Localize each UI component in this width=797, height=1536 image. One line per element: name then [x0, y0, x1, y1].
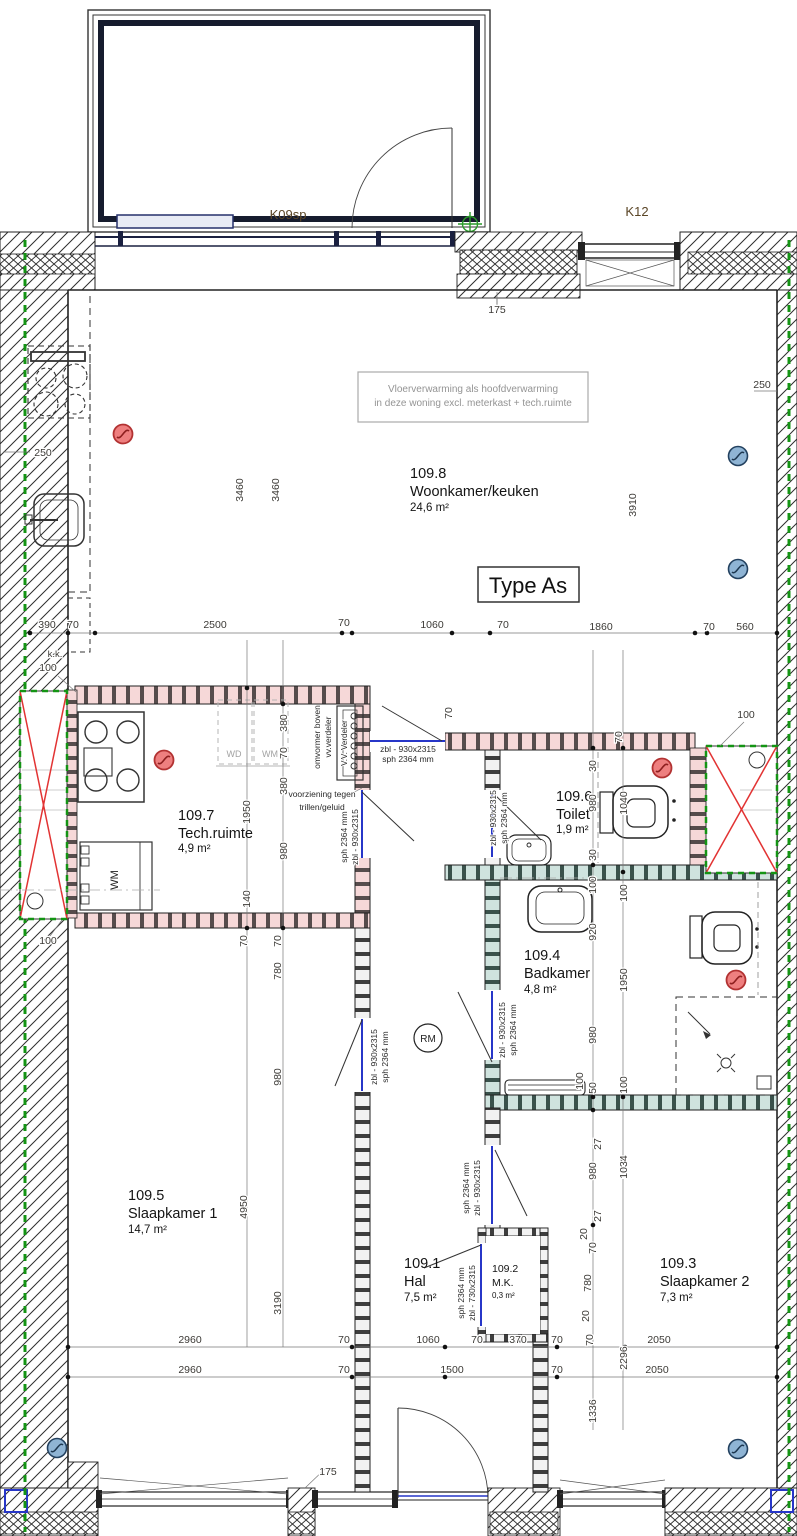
- type-label-box: Type As: [478, 567, 579, 602]
- dimension-label: 27: [592, 1210, 604, 1222]
- dimension-label: 250: [753, 379, 771, 391]
- interior-walls: [67, 686, 777, 1492]
- svg-text:4,8 m²: 4,8 m²: [524, 984, 557, 996]
- dimension-label: 3190: [272, 1291, 284, 1315]
- dimension-label: 30: [587, 760, 599, 772]
- smoke-detector-red-icon: [114, 425, 133, 444]
- toilet-wc: [600, 786, 676, 838]
- dimension-label: 2500: [203, 619, 227, 631]
- wd-label: WD: [227, 749, 242, 759]
- dimension-label: 980: [278, 842, 290, 860]
- front-door: [398, 1408, 488, 1500]
- dimension-label: 3910: [627, 493, 639, 517]
- dimension-label: 70: [613, 731, 625, 743]
- svg-text:Badkamer: Badkamer: [524, 966, 590, 982]
- svg-text:Toilet: Toilet: [556, 807, 590, 823]
- shafts: [20, 691, 777, 919]
- door-spec: zbl - 930x2315: [350, 809, 360, 865]
- svg-text:4,9 m²: 4,9 m²: [178, 843, 211, 855]
- dimension-label: 70: [703, 621, 715, 633]
- door-spec: sph 2364 mm: [339, 811, 349, 863]
- bedroom1-door: [335, 1018, 372, 1092]
- svg-text:109.1: 109.1: [404, 1256, 440, 1272]
- svg-text:109.4: 109.4: [524, 948, 560, 964]
- door-spec: zbl - 930x2315: [472, 1160, 482, 1216]
- svg-text:14,7 m²: 14,7 m²: [128, 1224, 167, 1236]
- dimension-label: 560: [736, 621, 754, 633]
- dimension-label: 2050: [647, 1334, 671, 1346]
- dimension-label: 380: [278, 714, 290, 732]
- right-shaft: [706, 746, 777, 873]
- dimension-label: 100: [39, 935, 57, 947]
- dimension-label: 780: [582, 1274, 594, 1292]
- bathroom-wc: [690, 912, 759, 964]
- dimension-label: 70: [272, 935, 284, 947]
- dimension-label: 100: [587, 876, 599, 894]
- dimension-label: 100: [737, 709, 755, 721]
- door-spec: sph 2364 mm: [499, 792, 509, 844]
- svg-text:Woonkamer/keuken: Woonkamer/keuken: [410, 484, 539, 500]
- dimension-label: 370: [509, 1334, 527, 1346]
- svg-text:109.7: 109.7: [178, 808, 214, 824]
- omvormer-note-1: omvormer boven: [312, 705, 322, 769]
- omvormer-note-2: vv.verdeler: [323, 716, 333, 757]
- bathroom-washbasin: [528, 886, 592, 932]
- detector-blue-icon: [48, 1439, 67, 1458]
- left-shaft-wall: [67, 690, 77, 918]
- dimension-label: 100: [574, 1072, 586, 1090]
- smoke-detector-red-icon: [727, 971, 746, 990]
- room-label-bathroom: 109.4 Badkamer 4,8 m²: [524, 948, 590, 996]
- symbols: RM: [48, 425, 748, 1459]
- svg-text:109.3: 109.3: [660, 1256, 696, 1272]
- right-shaft-wall: [690, 748, 706, 872]
- door-spec: sph 2364 mm: [380, 1031, 390, 1083]
- dimension-label: 140: [241, 890, 253, 908]
- tech-room-bottom-wall: [75, 913, 370, 928]
- dimension-label: 30: [587, 849, 599, 861]
- tech-room-top-wall: [75, 686, 370, 704]
- dimension-label: 20: [578, 1228, 590, 1240]
- window-k12: [578, 242, 681, 286]
- right-exterior-wall: [777, 232, 797, 1536]
- window-hall-sidelite: [312, 1490, 398, 1508]
- window-bedroom1: [96, 1478, 292, 1508]
- svg-text:0,3 m²: 0,3 m²: [492, 1291, 515, 1300]
- kk-label: k.k.: [48, 649, 63, 660]
- dimension-label: 3460: [270, 478, 282, 502]
- svg-text:Tech.ruimte: Tech.ruimte: [178, 826, 253, 842]
- room-label-livingroom: 109.8 Woonkamer/keuken 24,6 m²: [410, 466, 539, 514]
- dimension-label: 390: [38, 619, 56, 631]
- heatpump-unit: [78, 712, 144, 802]
- heating-note-box: Vloerverwarming als hoofdverwarming in d…: [358, 372, 588, 422]
- dimension-label: 70: [238, 935, 250, 947]
- window-code: K12: [625, 204, 648, 219]
- svg-text:RM: RM: [420, 1034, 436, 1045]
- vv-verdeler-label: V.V. Verdeler: [340, 720, 349, 766]
- svg-text:Slaapkamer 2: Slaapkamer 2: [660, 1274, 749, 1290]
- bathroom-west-wall: [485, 880, 500, 1095]
- bottom-exterior-wall: [0, 1408, 797, 1536]
- dimension-label: 20: [580, 1310, 592, 1322]
- smoke-detector-red-icon: [155, 751, 174, 770]
- door-spec: sph 2364 mm: [508, 1004, 518, 1056]
- door-spec: zbl - 730x2315: [467, 1265, 477, 1321]
- dimension-label: 70: [338, 1334, 350, 1346]
- note-line-2: in deze woning excl. meterkast + tech.ru…: [374, 398, 572, 409]
- room-label-bedroom1: 109.5 Slaapkamer 1 14,7 m²: [128, 1188, 217, 1236]
- washing-machine-label: WM: [109, 870, 121, 890]
- dimension-label: 1336: [587, 1399, 599, 1423]
- dimension-label: 70: [338, 1364, 350, 1376]
- svg-text:24,6 m²: 24,6 m²: [410, 502, 449, 514]
- dimension-label: 100: [618, 884, 630, 902]
- rm-smoke-detector-symbol: RM: [414, 1024, 442, 1052]
- dimension-label: 70: [497, 619, 509, 631]
- towel-radiator: [505, 1080, 585, 1095]
- note-line-1: Vloerverwarming als hoofdverwarming: [388, 384, 558, 395]
- dimension-label: 70: [278, 747, 290, 759]
- svg-text:109.8: 109.8: [410, 466, 446, 482]
- room-labels: 109.8 Woonkamer/keuken 24,6 m² 109.7 Tec…: [128, 466, 749, 1304]
- balcony-door-code: K09sp: [270, 207, 307, 222]
- svg-text:M.K.: M.K.: [492, 1277, 514, 1289]
- balcony-floor: [101, 23, 477, 219]
- dimension-label: 70: [584, 1334, 596, 1346]
- dimension-label: 1500: [440, 1364, 464, 1376]
- door-spec: zbl - 930x2315: [369, 1029, 379, 1085]
- door-spec: zbl - 930x2315: [497, 1002, 507, 1058]
- dimension-label: 100: [618, 1076, 630, 1094]
- dimension-label: 70: [471, 1334, 483, 1346]
- dimension-label: 1950: [618, 968, 630, 992]
- balcony: [88, 10, 490, 236]
- dimension-label: 70: [338, 617, 350, 629]
- dimension-label: 50: [587, 1082, 599, 1094]
- door-spec: zbl - 930x2315: [380, 744, 436, 754]
- dimension-label: 1060: [420, 619, 444, 631]
- svg-text:7,3 m²: 7,3 m²: [660, 1292, 693, 1304]
- dimension-label: 2960: [178, 1364, 202, 1376]
- shower: [676, 997, 777, 1095]
- balcony-planter: [117, 215, 233, 228]
- dimension-label: 2960: [178, 1334, 202, 1346]
- dimension-label: 780: [272, 962, 284, 980]
- hall-east-lower-wall: [533, 1342, 548, 1492]
- detector-blue-icon: [729, 447, 748, 466]
- wm-label: WM: [262, 749, 278, 759]
- dimension-label: 380: [278, 777, 290, 795]
- dimension-label: 920: [587, 923, 599, 941]
- door-spec: sph 2364 mm: [461, 1162, 471, 1214]
- dimension-label: 70: [551, 1334, 563, 1346]
- detector-blue-icon: [729, 1440, 748, 1459]
- type-label: Type As: [489, 573, 567, 598]
- bedroom2-door: [483, 1145, 527, 1225]
- dimension-label: 980: [272, 1068, 284, 1086]
- svg-text:7,5 m²: 7,5 m²: [404, 1292, 437, 1304]
- dimension-label: 1950: [241, 800, 253, 824]
- smoke-detector-red-icon: [653, 759, 672, 778]
- dimension-label: 980: [587, 1026, 599, 1044]
- tech-room-door: [353, 790, 414, 858]
- dimension-label: 980: [587, 794, 599, 812]
- dimension-label: 70: [587, 1242, 599, 1254]
- svg-text:Hal: Hal: [404, 1274, 426, 1290]
- door-spec: sph 2364 mm: [382, 754, 434, 764]
- svg-text:109.5: 109.5: [128, 1188, 164, 1204]
- dimension-label: 2050: [645, 1364, 669, 1376]
- door-spec: sph 2364 mm: [456, 1267, 466, 1319]
- window-bedroom2: [557, 1480, 668, 1508]
- balcony-door-frame: [95, 231, 458, 246]
- hall-west-wall: [355, 928, 370, 1492]
- dimension-label: 70: [67, 619, 79, 631]
- left-shaft: [20, 691, 67, 919]
- dimension-label: 1040: [618, 791, 630, 815]
- floor-plan-page: WM WD WM V.V. Verdeler: [0, 0, 797, 1536]
- bathroom-bottom-wall: [485, 1095, 777, 1110]
- dimension-label: 1060: [416, 1334, 440, 1346]
- vibration-note-2: trillen/geluid: [299, 802, 345, 812]
- dimension-label: 100: [39, 662, 57, 674]
- dimension-label: 175: [319, 1466, 337, 1478]
- dimension-label: 1860: [589, 621, 613, 633]
- dimension-label: 70: [551, 1364, 563, 1376]
- dimension-label: 250: [34, 447, 52, 459]
- dimension-label: 175: [488, 304, 506, 316]
- room-label-hall: 109.1 Hal 7,5 m²: [404, 1256, 440, 1304]
- vibration-note-1: voorziening tegen: [288, 789, 355, 799]
- bathroom-door: [458, 990, 502, 1062]
- dimension-label: 2296: [618, 1346, 630, 1370]
- dimension-label: 4950: [238, 1195, 250, 1219]
- dimension-label: 980: [587, 1162, 599, 1180]
- toilet-top-wall: [445, 733, 695, 750]
- dimension-label: 3460: [234, 478, 246, 502]
- door-spec: zbl - 930x2315: [488, 790, 498, 846]
- dimension-label: 27: [592, 1138, 604, 1150]
- svg-text:109.2: 109.2: [492, 1263, 518, 1275]
- svg-text:1,9 m²: 1,9 m²: [556, 824, 589, 836]
- floor-plan-drawing: WM WD WM V.V. Verdeler: [0, 0, 797, 1536]
- dimension-label: 70: [443, 707, 455, 719]
- room-label-bedroom2: 109.3 Slaapkamer 2 7,3 m²: [660, 1256, 749, 1304]
- toilet-handbasin: [507, 835, 551, 865]
- front-door-swing-arc: [398, 1408, 488, 1498]
- kitchen-counter: [68, 296, 90, 652]
- dimension-label: 1034: [618, 1155, 630, 1179]
- svg-text:Slaapkamer 1: Slaapkamer 1: [128, 1206, 217, 1222]
- detector-blue-icon: [729, 560, 748, 579]
